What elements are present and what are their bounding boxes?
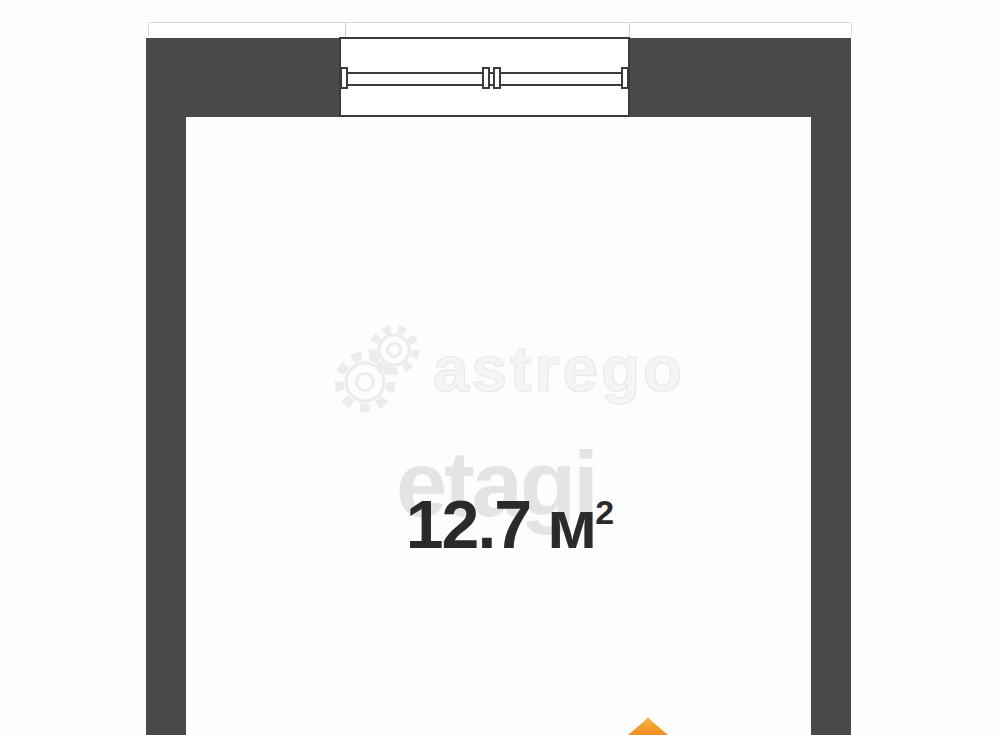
room-area-sup: 2 <box>595 493 614 531</box>
exterior-ledge-line <box>148 22 852 37</box>
window-mullion <box>493 67 501 89</box>
room-area-label: 12.7 м2 <box>320 490 700 558</box>
astrego-watermark: astrego <box>335 325 680 415</box>
floor-plan-canvas: astrego etagi 12.7 м2 <box>0 0 1000 735</box>
ledge-tick <box>629 23 630 38</box>
wall-right <box>811 38 851 735</box>
etagi-logo-tip-icon <box>628 718 668 735</box>
window-mullion <box>621 67 629 89</box>
window-symbol <box>339 37 630 117</box>
window-mullion <box>482 67 490 89</box>
room-area-value: 12.7 м <box>406 486 596 562</box>
astrego-watermark-text: astrego <box>433 337 685 401</box>
window-mullion <box>340 67 348 89</box>
wall-left <box>146 38 186 735</box>
gears-icon <box>335 325 430 415</box>
ledge-tick <box>345 23 346 38</box>
